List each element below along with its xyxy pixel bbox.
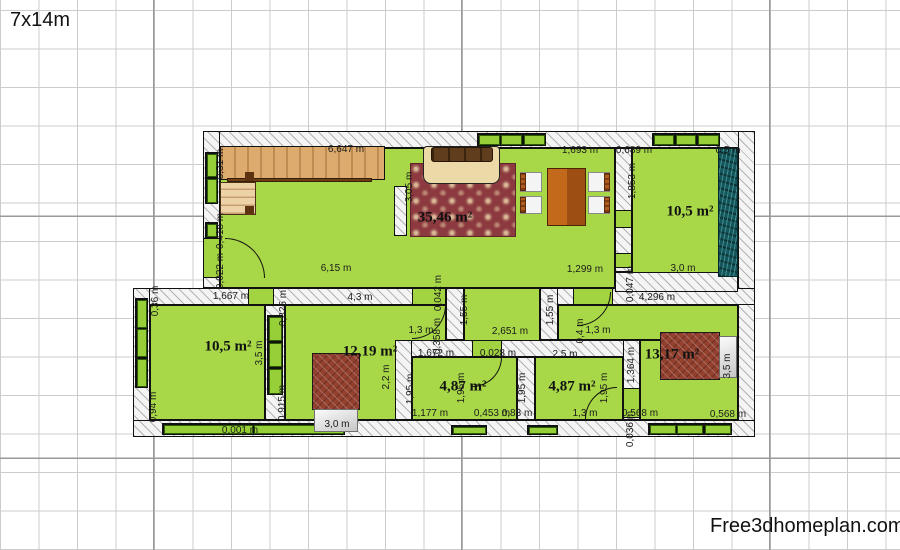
window xyxy=(527,425,558,435)
dimension-label: 1,364 m xyxy=(627,347,637,383)
window xyxy=(267,315,283,395)
dimension-label: 4,296 m xyxy=(639,293,675,303)
wardrobe xyxy=(718,148,738,277)
dimension-label: 1,672 m xyxy=(418,349,454,359)
watermark-text: Free3dhomeplan.com xyxy=(710,515,900,538)
dimension-label: 1,95 m xyxy=(406,374,416,405)
dimension-label: 6,15 m xyxy=(321,264,352,274)
dimension-label: 1,3 m xyxy=(408,326,433,336)
wall xyxy=(738,131,755,437)
dimension-label: 0,022 m xyxy=(216,253,226,289)
dimension-label: 0,83 m xyxy=(502,409,533,419)
plan-size-title: 7x14m xyxy=(10,9,70,32)
dimension-label: 2,5 m xyxy=(552,350,577,360)
room-area-label: 4,87 m² xyxy=(549,379,596,396)
dimension-label: 0,825 m xyxy=(279,290,289,326)
dining-chair xyxy=(588,172,610,192)
bed xyxy=(312,353,360,410)
dimension-label: 1,667 m xyxy=(213,292,249,302)
dimension-label: 0,418 m xyxy=(216,213,226,249)
dimension-label: 3,5 m xyxy=(723,353,733,378)
room-area-label: 13,17 m² xyxy=(645,347,700,364)
dimension-label: 0,028 m xyxy=(480,349,516,359)
dimension-label: 0,001 m xyxy=(222,426,258,436)
dimension-label: 0,036 m xyxy=(626,411,636,447)
dimension-label: 0,5 m xyxy=(715,146,740,156)
dimension-label: 0,36 m xyxy=(151,286,161,317)
dimension-label: 1,693 m xyxy=(562,146,598,156)
room-area-label: 35,46 m² xyxy=(418,210,473,227)
dimension-label: 3,0 m xyxy=(324,420,349,430)
floor-plan-canvas: 7x14m Free3dhomeplan.com 6,647 m0,31 m1,… xyxy=(0,0,900,550)
dimension-label: 0,915 m xyxy=(278,385,288,421)
dimension-label: 1,299 m xyxy=(567,265,603,275)
window xyxy=(477,133,546,146)
dimension-label: 3,0 m xyxy=(670,264,695,274)
dimension-label: 1,853 m xyxy=(628,163,638,199)
dimension-label: 4,3 m xyxy=(347,293,372,303)
window xyxy=(652,133,720,146)
dimension-label: 0,042 m xyxy=(434,275,444,311)
dimension-label: 1,3 m xyxy=(572,409,597,419)
dimension-label: 2,651 m xyxy=(492,327,528,337)
room-area-label: 10,5 m² xyxy=(667,204,714,221)
door-opening-sill xyxy=(248,288,274,305)
dimension-label: 1,3 m xyxy=(585,326,610,336)
dimension-label: 0,94 m xyxy=(149,392,159,423)
staircase-post xyxy=(245,172,254,181)
room-area-label: 4,87 m² xyxy=(440,379,487,396)
room-area-label: 10,5 m² xyxy=(205,339,252,356)
dimension-label: 1,55 m xyxy=(460,295,470,326)
dining-chair xyxy=(520,196,542,214)
dimension-label: 0,689 m xyxy=(616,146,652,156)
dimension-label: 1,55 m xyxy=(546,295,556,326)
dimension-label: 0,31 m xyxy=(216,149,226,180)
dimension-label: 6,647 m xyxy=(328,145,364,155)
dining-chair xyxy=(588,196,610,214)
dimension-label: 0,568 m xyxy=(710,410,746,420)
dimension-label: 1,95 m xyxy=(600,373,610,404)
dimension-label: 2,2 m xyxy=(382,364,392,389)
window xyxy=(648,423,732,435)
sofa-cushions xyxy=(431,147,493,162)
window xyxy=(451,425,487,435)
dining-table xyxy=(547,168,586,226)
door-opening-sill xyxy=(615,210,632,228)
room-floor xyxy=(150,305,265,420)
dimension-label: 1,177 m xyxy=(412,409,448,419)
dimension-label: 3,5 m xyxy=(255,340,265,365)
room-area-label: 12,19 m² xyxy=(343,344,398,361)
dimension-label: 3,05 m xyxy=(405,172,415,203)
dining-chair xyxy=(520,172,542,192)
wall xyxy=(133,288,455,305)
window xyxy=(135,298,148,388)
staircase-post xyxy=(245,206,254,215)
dimension-label: 1,95 m xyxy=(518,373,528,404)
dimension-label: 0,047 m xyxy=(626,266,636,302)
